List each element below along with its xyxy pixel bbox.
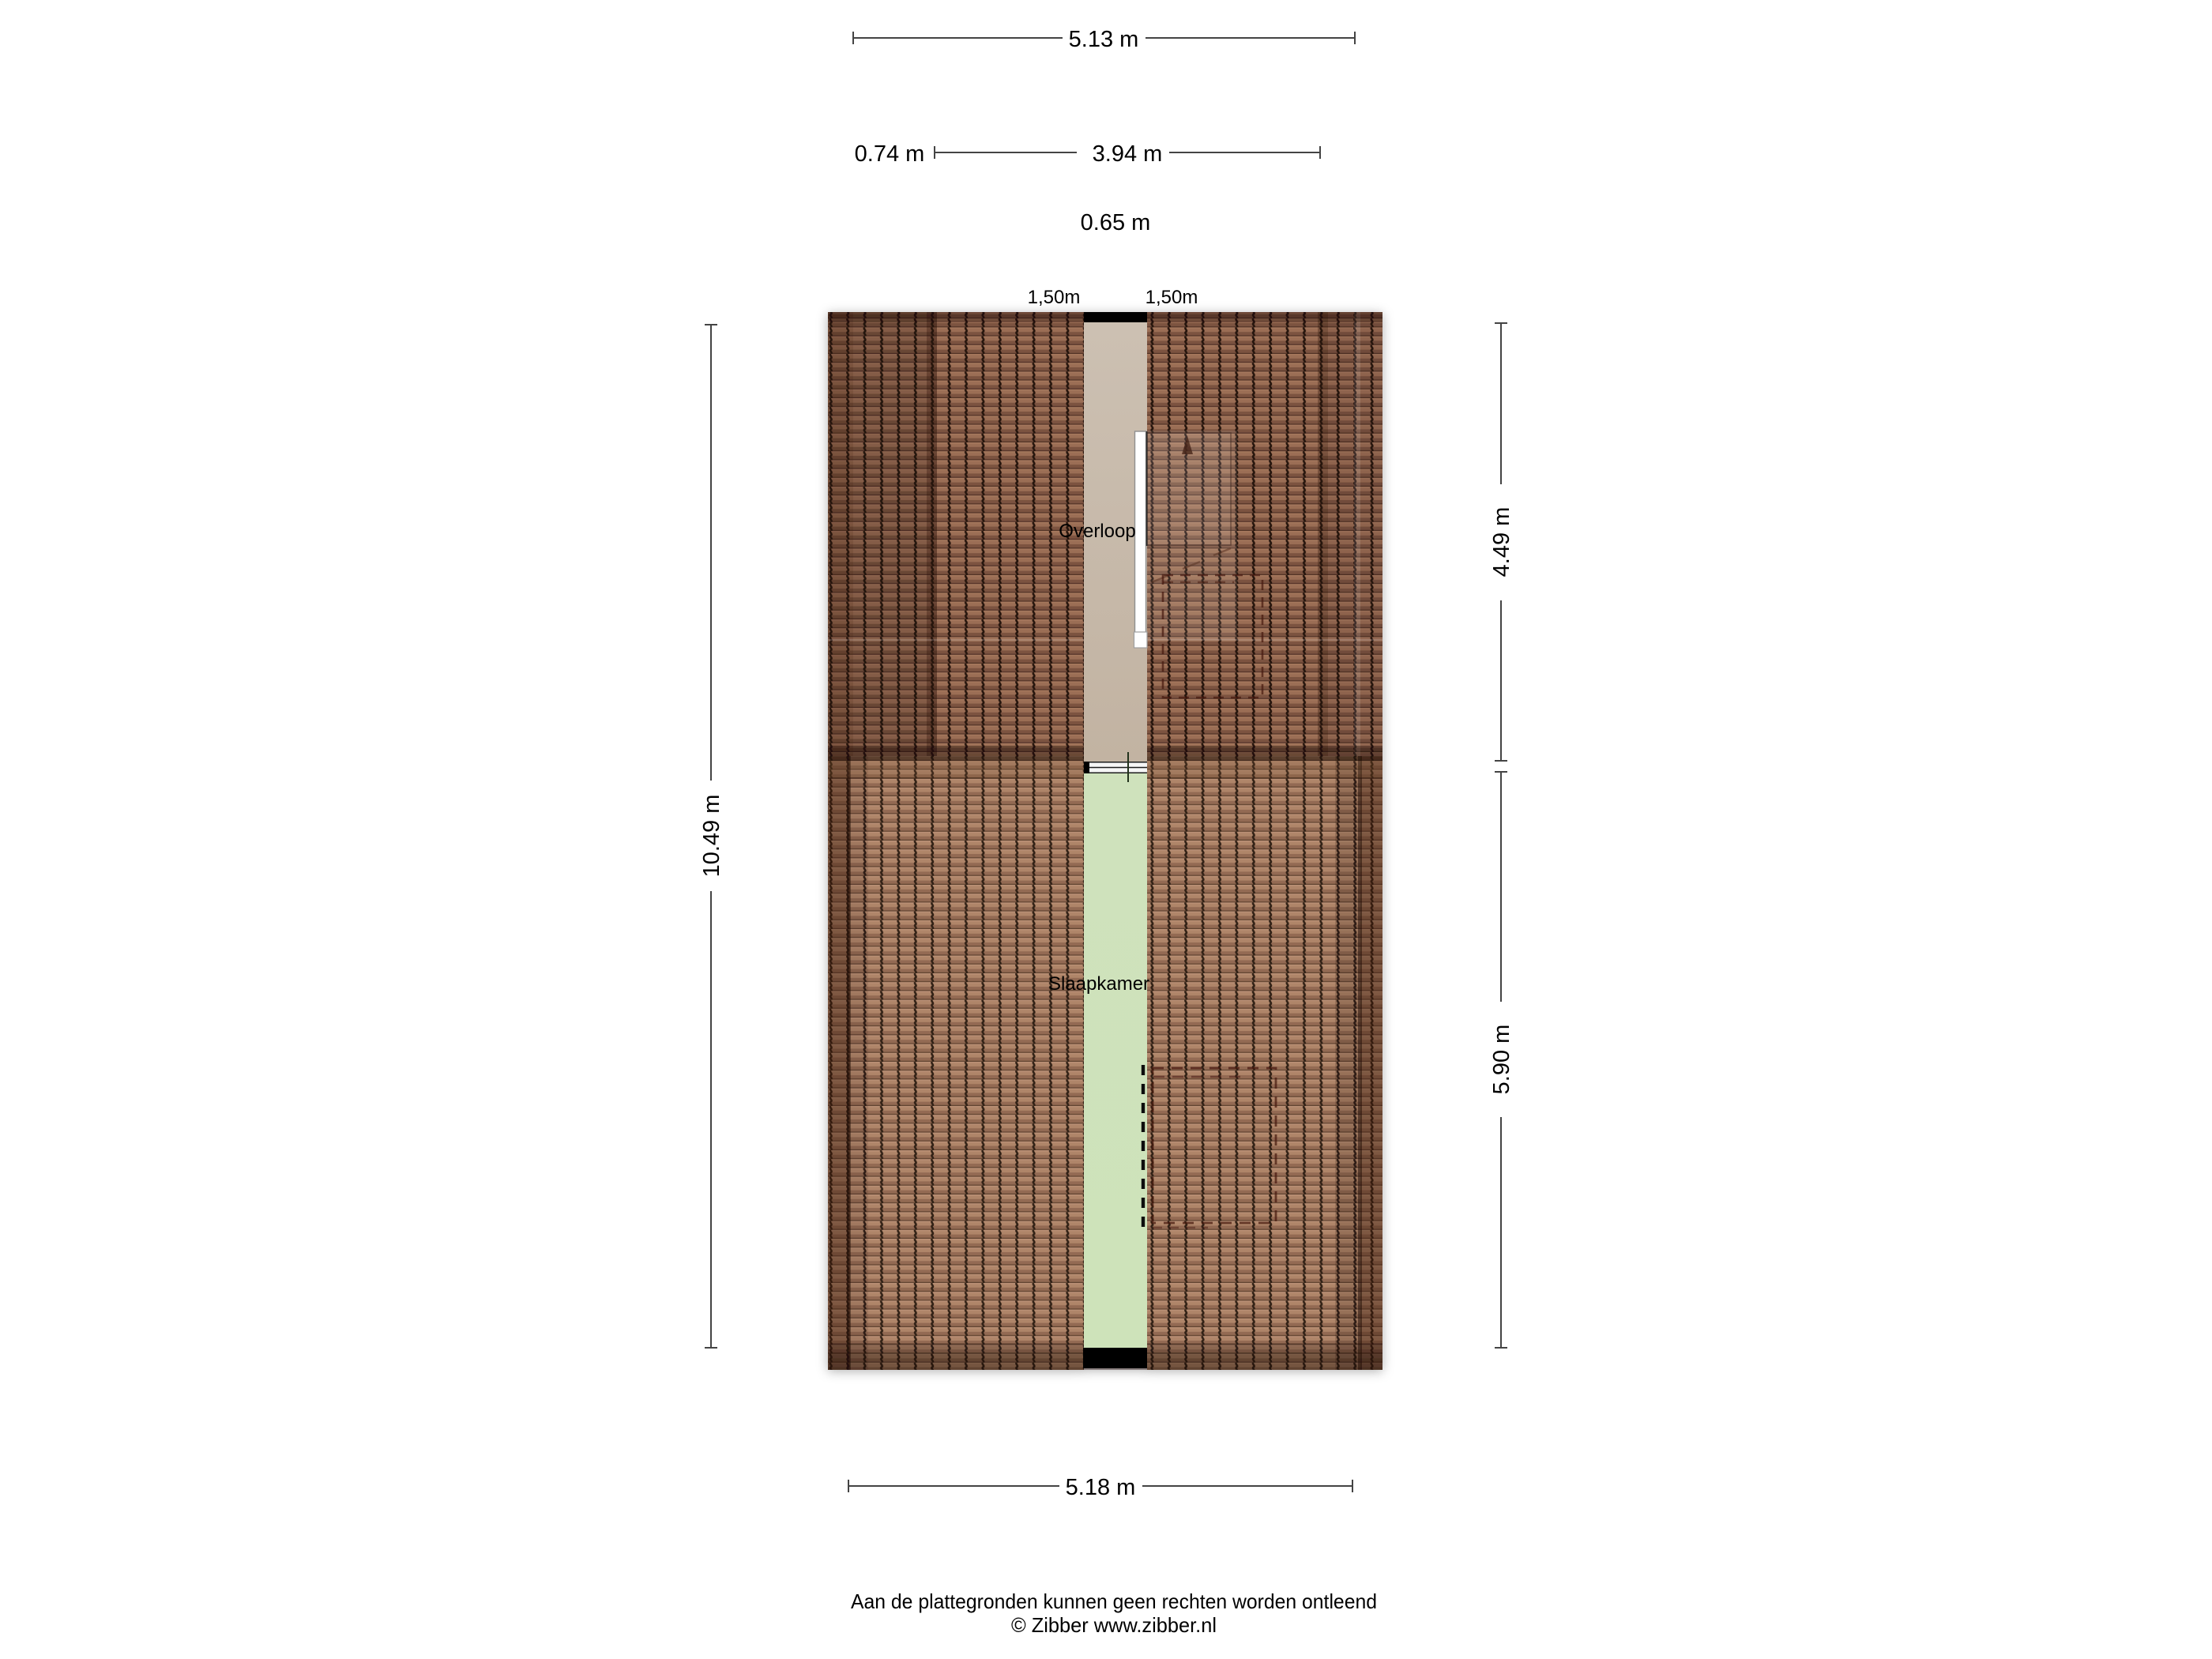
svg-text:© Zibber www.zibber.nl: © Zibber www.zibber.nl: [1011, 1613, 1217, 1637]
svg-text:1,50m: 1,50m: [1028, 287, 1081, 308]
svg-text:Overloop: Overloop: [1059, 521, 1135, 542]
svg-text:0.65 m: 0.65 m: [1081, 210, 1151, 235]
svg-text:0.74 m: 0.74 m: [855, 141, 925, 167]
svg-text:3.94 m: 3.94 m: [1093, 141, 1163, 167]
svg-text:10.49 m: 10.49 m: [699, 795, 724, 878]
svg-text:4.49 m: 4.49 m: [1489, 507, 1514, 577]
svg-text:Slaapkamer: Slaapkamer: [1048, 973, 1149, 995]
svg-text:Aan de plattegronden kunnen ge: Aan de plattegronden kunnen geen rechten…: [851, 1589, 1377, 1613]
svg-text:1,50m: 1,50m: [1145, 287, 1198, 308]
svg-text:5.18 m: 5.18 m: [1066, 1475, 1136, 1500]
svg-text:5.13 m: 5.13 m: [1069, 27, 1139, 52]
svg-text:5.90 m: 5.90 m: [1489, 1025, 1514, 1095]
